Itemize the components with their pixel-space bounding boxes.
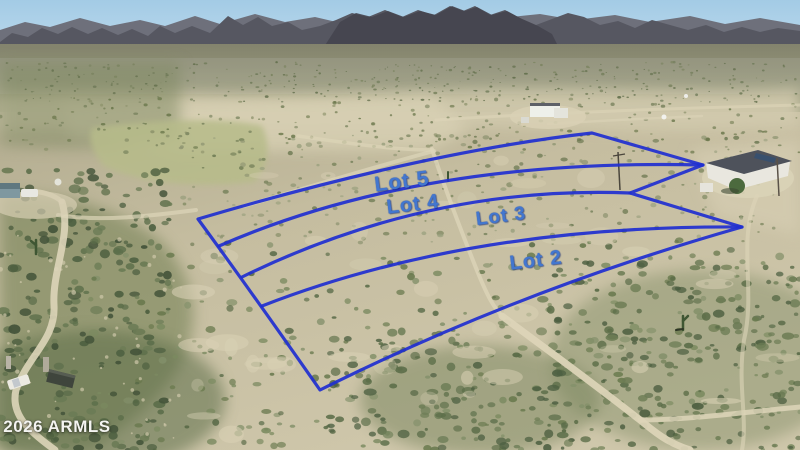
tree-shadow xyxy=(721,188,739,194)
watermark-copyright: © 2026 ARMLS xyxy=(0,417,111,437)
white-speck xyxy=(684,94,688,98)
roof-stripe xyxy=(0,183,20,189)
desert-scene xyxy=(0,0,800,450)
aerial-lot-photo: Lot 5Lot 4Lot 3Lot 2 © 2026 ARMLS xyxy=(0,0,800,450)
house-wing xyxy=(554,108,568,118)
gate-post xyxy=(6,356,11,369)
shed xyxy=(700,183,713,192)
gate-post xyxy=(43,357,49,372)
shed xyxy=(521,117,529,123)
water-tank xyxy=(55,179,62,186)
rv-trailer xyxy=(21,189,38,197)
white-trailer-speck xyxy=(662,115,667,120)
